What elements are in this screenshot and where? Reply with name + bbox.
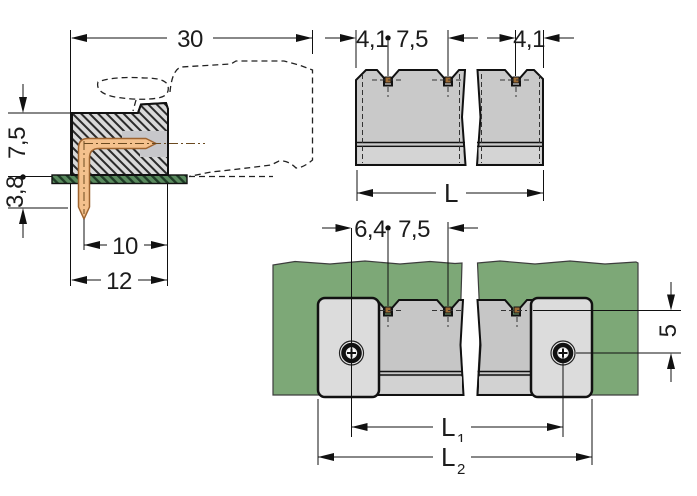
dim-4-1-right-label: 4,1 [513,26,545,53]
dim-3-8-label: 3,8 [2,176,29,208]
arrowhead [544,34,560,42]
dim-12-label: 12 [106,268,132,295]
dim-7-5-mounting-label: 7,5 [398,216,430,243]
arrowhead [19,208,27,224]
arrowhead [19,97,27,113]
pcb-mounting-view: 6,4 7,5 5 L 1 L 2 [273,216,682,478]
header-top-view: 4,1 7,5 4,1 L [325,26,574,208]
connector-dimension-drawing: 30 7,5 3,8 10 12 [0,0,697,496]
arrowhead [318,453,334,461]
side-section-view: 30 7,5 3,8 10 12 [2,25,313,295]
header-front-strip [479,148,542,164]
arrowhead [527,189,543,197]
dim-dot [385,35,390,40]
dim-5-label: 5 [655,324,682,337]
dim-7-5-side-label: 7,5 [4,127,31,159]
arrowhead [296,34,312,42]
arrowhead [667,353,675,369]
mating-plug-ear-outline [98,78,169,100]
arrowhead [547,423,563,431]
pcb-board-section [52,175,187,184]
connector-tongue-lower-hatch [88,149,140,158]
arrowhead [448,34,464,42]
arrowhead [448,224,464,232]
dim-L1-label: L [441,412,455,442]
technical-drawing-page: 30 7,5 3,8 10 12 [0,0,697,496]
arrowhead [357,189,373,197]
arrowhead [340,34,356,42]
dim-6-4-label: 6,4 [354,216,386,243]
arrowhead [84,241,100,249]
arrowhead [71,276,87,284]
arrowhead [667,295,675,311]
mating-plug-detail [133,100,136,111]
dim-30-label: 30 [177,26,203,53]
dim-L2-subscript: 2 [457,461,465,478]
dim-L2-label: L [441,442,455,472]
dim-7-5-top-label: 7,5 [396,26,428,53]
header-front-strip [358,148,464,164]
dim-10-label: 10 [112,233,138,260]
arrowhead [576,453,592,461]
arrowhead [336,224,352,232]
dim-dot [385,225,390,230]
arrowhead [151,276,167,284]
arrowhead [352,423,368,431]
dim-4-1-left-label: 4,1 [356,26,388,53]
arrowhead [151,241,167,249]
dim-L-label: L [444,178,458,208]
connector-tongue-upper-hatch [88,129,122,139]
mating-plug-outline [170,61,313,177]
arrowhead [71,34,87,42]
